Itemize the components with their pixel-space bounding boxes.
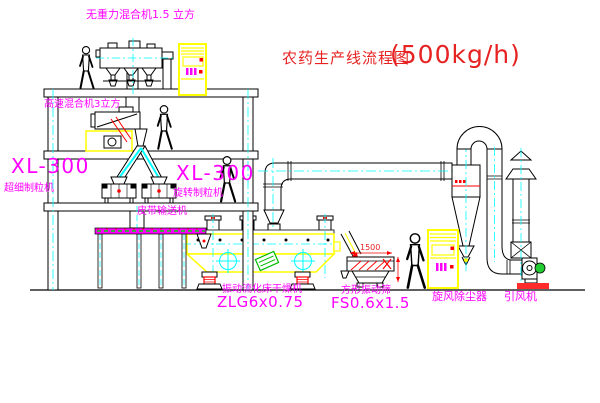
cyclone-marking (455, 180, 466, 183)
cad-canvas: 无重力混合机1.5 立方 农药生产线流程图 (500kg/h) 高速混合机3立方… (0, 0, 600, 403)
belt-legs (98, 234, 186, 288)
fluid-bed-dryer (182, 214, 340, 289)
granulator-left-machine (102, 177, 136, 203)
label-screen-model: FS0.6x1.5 (331, 296, 410, 311)
induced-draft-fan (517, 258, 549, 289)
label-fan: 引风机 (504, 291, 537, 302)
pipe-bend (457, 127, 502, 149)
label-granulator-center: 旋转制粒机 (173, 189, 223, 199)
indicator-light-red (200, 58, 204, 62)
label-top-mixer: 无重力混合机1.5 立方 (86, 9, 195, 20)
label-xl300-center: XL-300 (176, 163, 255, 183)
control-cabinet-upper (179, 44, 206, 95)
granulator-right-machine (142, 177, 176, 203)
exhaust-duct (258, 158, 455, 228)
worker-figure (158, 106, 172, 149)
label-cyclone: 旋风除尘器 (432, 291, 487, 302)
building-column-front (243, 211, 253, 290)
control-cabinet-lower (428, 230, 458, 288)
worker-figure (407, 234, 425, 288)
label-granulator-left: 超细制粒机 (4, 184, 54, 194)
label-belt-conveyor: 皮带输送机 (137, 207, 187, 217)
label-xl300-left: XL-300 (11, 156, 90, 176)
fan-motor (535, 263, 545, 273)
fan-base (517, 283, 549, 289)
label-high-speed-mixer: 高速混合机3立方 (44, 100, 120, 110)
indicator-lights-magenta (186, 68, 197, 75)
indicator-lights-magenta (436, 263, 447, 271)
worker-figure (80, 47, 94, 88)
vibrating-screen (341, 231, 400, 287)
label-dryer-model: ZLG6x0.75 (217, 295, 304, 310)
label-screen-dimension: 1500 (360, 244, 380, 252)
diagram-title-capacity: (500kg/h) (390, 42, 521, 67)
